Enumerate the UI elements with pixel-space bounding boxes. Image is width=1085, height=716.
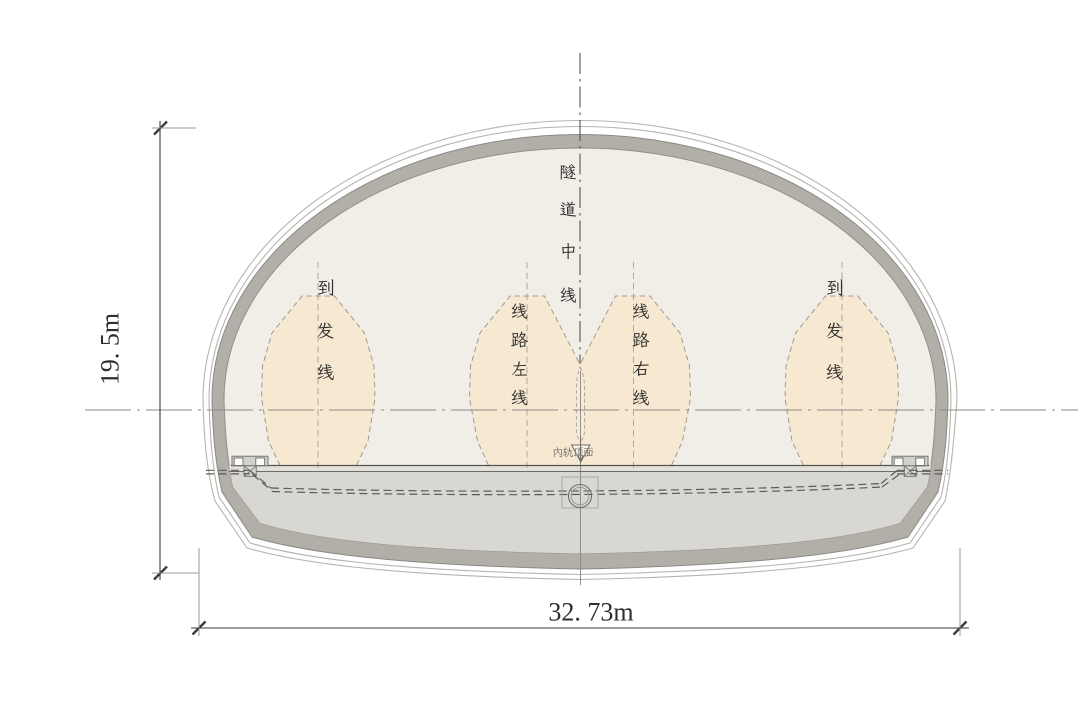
svg-text:32. 73m: 32. 73m [548,598,633,627]
svg-text:19. 5m: 19. 5m [96,313,125,385]
